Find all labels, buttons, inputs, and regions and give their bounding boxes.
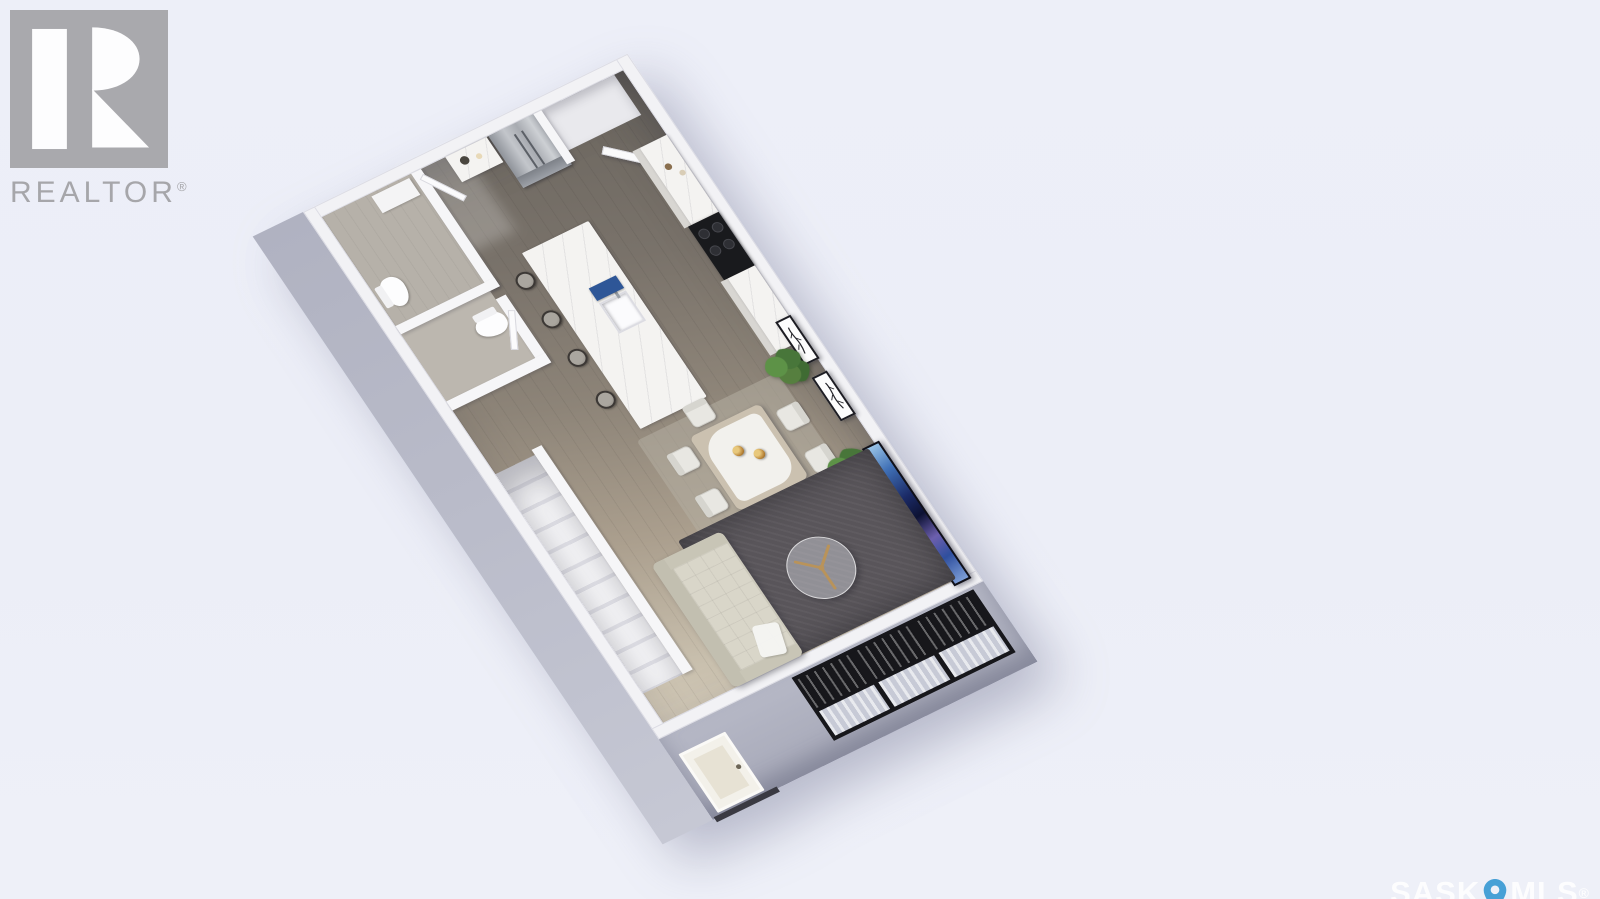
watermark-mls: MLS bbox=[1510, 875, 1578, 899]
listing-image: REALTOR® SASK MLS® bbox=[0, 0, 1600, 899]
watermark-sask: SASK bbox=[1390, 875, 1480, 899]
registered-symbol: ® bbox=[1579, 885, 1590, 899]
registered-symbol: ® bbox=[177, 179, 187, 194]
stove-burner bbox=[707, 244, 723, 258]
stove-burner bbox=[721, 237, 737, 251]
realtor-r-icon bbox=[10, 10, 168, 168]
sask-mls-watermark: SASK MLS® bbox=[1390, 875, 1590, 899]
map-pin-icon bbox=[1483, 879, 1507, 899]
floor-plan-unit bbox=[303, 54, 983, 740]
realtor-logo: REALTOR® bbox=[10, 10, 210, 210]
floor-plan bbox=[0, 0, 1600, 899]
realtor-wordmark: REALTOR® bbox=[10, 176, 210, 210]
stove-burner bbox=[710, 220, 726, 234]
stove-burner bbox=[696, 227, 712, 241]
